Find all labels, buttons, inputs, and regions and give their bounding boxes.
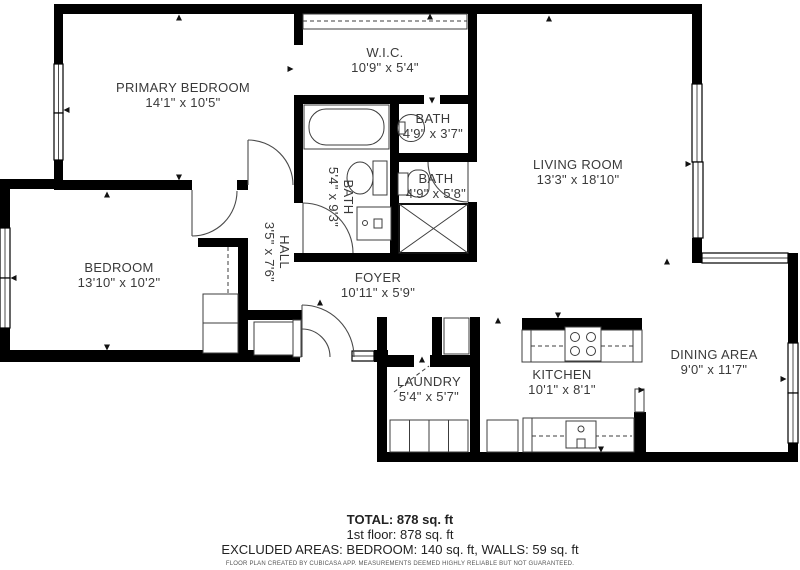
foyer-closet [254,320,301,357]
wic-closet-shelf [303,14,467,29]
room-label-hall: HALL 3'5" x 7'6" [262,222,292,282]
first-floor-area: 1st floor: 878 sq. ft [0,527,800,542]
refrigerator [487,420,518,452]
room-label-bath-mid: BATH 4'9" x 5'8" [406,171,466,201]
room-label-dining-area: DINING AREA 9'0" x 11'7" [670,347,757,377]
bedroom-door [192,190,237,236]
stairs [390,420,468,452]
bathtub [304,105,389,149]
kitchen-sink [566,421,596,448]
disclaimer: FLOOR PLAN CREATED BY CUBICASA APP. MEAS… [0,560,800,569]
hall-closet-shelf [444,318,469,354]
room-label-wic: W.I.C. 10'9" x 5'4" [351,45,419,75]
shower [399,204,468,253]
room-label-living-room: LIVING ROOM 13'3" x 18'10" [533,157,623,187]
excluded-areas: EXCLUDED AREAS: BEDROOM: 140 sq. ft, WAL… [0,542,800,557]
room-label-bath-top: BATH 4'9" x 3'7" [403,111,463,141]
stove [565,327,601,361]
room-label-laundry: LAUNDRY 5'4" x 5'7" [397,374,461,404]
room-label-foyer: FOYER 10'11" x 5'9" [341,270,415,300]
floor-plan-page: PRIMARY BEDROOM 14'1" x 10'5" W.I.C. 10'… [0,0,800,570]
total-area: TOTAL: 878 sq. ft [0,512,800,527]
room-label-bedroom: BEDROOM 13'10" x 10'2" [78,260,161,290]
room-label-kitchen: KITCHEN 10'1" x 8'1" [528,367,596,397]
entry-double-door [302,305,354,357]
room-label-primary-bedroom: PRIMARY BEDROOM 14'1" x 10'5" [116,80,250,110]
bedroom-closet [203,247,238,353]
primary-bedroom-door [248,140,293,185]
vanity-sink [357,207,391,240]
area-summary: TOTAL: 878 sq. ft 1st floor: 878 sq. ft … [0,512,800,569]
room-label-bath-main: BATH 5'4" x 9'3" [326,167,356,227]
kitchen-counter-stove [522,327,642,362]
kitchen-counter-sink [523,389,644,452]
